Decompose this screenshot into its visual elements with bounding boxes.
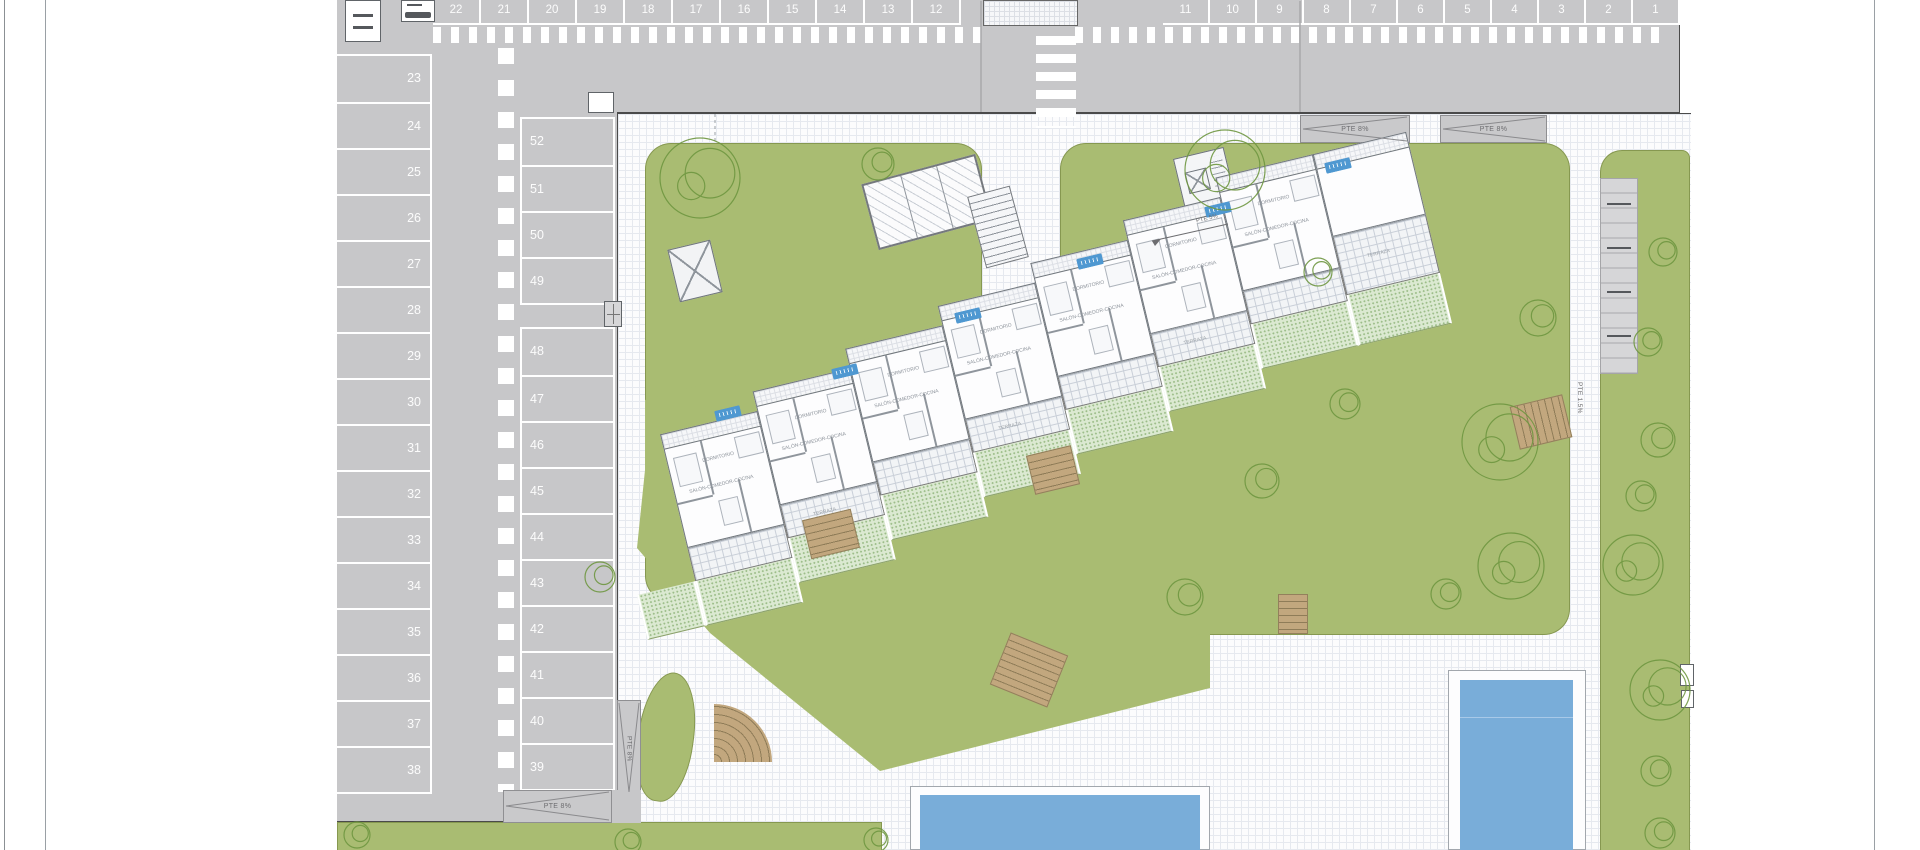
parking-stall: 22: [433, 0, 481, 23]
bed-icon: [951, 324, 981, 359]
parking-stall: 40: [522, 697, 613, 743]
parking-stall: 14: [817, 0, 865, 23]
parking-stall: 11: [1163, 0, 1210, 23]
swimming-pool-center: [920, 795, 1200, 850]
parking-stall: 16: [721, 0, 769, 23]
parking-stall: 8: [1304, 0, 1351, 23]
parking-stall: 44: [522, 513, 613, 559]
table-icon: [1274, 239, 1300, 269]
parking-stall: 15: [769, 0, 817, 23]
parking-stall: 33: [337, 516, 430, 562]
parking-row-top-left: 2221201918171615141312: [433, 0, 961, 25]
bathroom-icon: [1011, 303, 1041, 330]
road-marking-dashes: [1075, 27, 1660, 43]
parking-stall: 30: [337, 378, 430, 424]
parking-stall: 17: [673, 0, 721, 23]
drawing-border-right: [1874, 0, 1875, 850]
parking-stall: 25: [337, 148, 430, 194]
parking-stall: 35: [337, 608, 430, 654]
terrace-label: TERRAZA: [998, 421, 1022, 432]
car-symbol-box: [401, 0, 435, 22]
entrance-booth: [588, 92, 614, 113]
parking-stall: 26: [337, 194, 430, 240]
bathroom-icon: [826, 388, 856, 415]
parking-stall: 5: [1445, 0, 1492, 23]
bed-icon: [1136, 238, 1166, 273]
parking-stall: 51: [522, 165, 613, 211]
ramp-north-2: PTE 8%: [1440, 115, 1547, 143]
lawn-bottom-strip: [337, 822, 882, 850]
crossing-landing: [983, 0, 1078, 26]
terrace-label: TERRAZA: [1367, 248, 1391, 259]
drawing-border-left: [45, 0, 46, 850]
terrace-label: TERRAZA: [1183, 335, 1207, 346]
bed-icon: [673, 452, 703, 487]
bed-icon: [1043, 281, 1073, 316]
table-icon: [996, 368, 1022, 398]
path-slope-label: PTE 1.5%: [1576, 382, 1583, 414]
sign-box-icon: [345, 0, 381, 42]
lawn-steps: [1278, 594, 1308, 634]
page-edge-line: [4, 0, 5, 850]
private-garden: [637, 581, 706, 640]
parking-stall: 32: [337, 470, 430, 516]
parking-stall: 29: [337, 332, 430, 378]
bathroom-icon: [1104, 260, 1134, 287]
dash-mark: [407, 4, 422, 6]
bathroom-icon: [734, 431, 764, 458]
table-icon: [811, 453, 837, 483]
parking-stall: 52: [522, 119, 613, 165]
room-label: DORMITORIO: [702, 451, 735, 464]
parking-stall: 45: [522, 467, 613, 513]
parking-column-left: 23242526272829303132333435363738: [337, 54, 432, 794]
bathroom-icon: [919, 346, 949, 373]
table-icon: [1181, 282, 1207, 312]
parking-stall: 43: [522, 559, 613, 605]
bed-icon: [1228, 196, 1258, 231]
parking-stall: 19: [577, 0, 625, 23]
elevator-icon: [1184, 168, 1211, 195]
room-label: DORMITORIO: [1165, 237, 1198, 250]
parking-stall: 42: [522, 605, 613, 651]
apartment-module: TERRAZA: [1313, 132, 1423, 222]
parking-stall: 10: [1210, 0, 1257, 23]
room-label: DORMITORIO: [887, 365, 920, 378]
parking-stall: 23: [337, 56, 430, 102]
parking-stall: 13: [865, 0, 913, 23]
utility-box: [1680, 664, 1694, 686]
parking-stall: 4: [1492, 0, 1539, 23]
bed-icon: [765, 410, 795, 445]
parking-stall: 38: [337, 746, 430, 792]
room-label: DORMITORIO: [1072, 280, 1105, 293]
parking-stall: 50: [522, 211, 613, 257]
parking-stall: 6: [1398, 0, 1445, 23]
parking-stall: 12: [913, 0, 961, 23]
parking-stall: 20: [529, 0, 577, 23]
parking-stall: 3: [1539, 0, 1586, 23]
table-icon: [718, 496, 744, 526]
road-marking-dashes: [433, 27, 985, 43]
parking-stall: 41: [522, 651, 613, 697]
parking-stall: 37: [337, 700, 430, 746]
parking-stall: 27: [337, 240, 430, 286]
table-icon: [903, 410, 929, 440]
parking-stall: 2: [1586, 0, 1633, 23]
car-icon: [405, 12, 431, 18]
ramp-west-vertical: PTE 8%: [617, 700, 641, 797]
ramp-label: PTE 8%: [544, 803, 571, 810]
parking-stall: 24: [337, 102, 430, 148]
ramp-corner: [612, 790, 641, 823]
room-label: DORMITORIO: [794, 408, 827, 421]
lane-divider-dashes: [498, 48, 514, 792]
parking-row-top-right: 1110987654321: [1163, 0, 1680, 25]
parking-stall: 21: [481, 0, 529, 23]
room-label: DORMITORIO: [979, 322, 1012, 335]
parking-stall: 36: [337, 654, 430, 700]
parking-stall: 9: [1257, 0, 1304, 23]
utility-box: [1681, 690, 1694, 708]
swimming-pool-right: [1460, 680, 1573, 850]
site-plan-canvas: 2221201918171615141312 1110987654321 232…: [0, 0, 1920, 850]
parking-stall: 1: [1633, 0, 1680, 23]
ramp-label: PTE 8%: [1480, 126, 1507, 133]
bike-racks: [1600, 178, 1638, 374]
table-icon: [1088, 325, 1114, 355]
ramp-label: PTE 8%: [626, 736, 633, 762]
parking-stall: 34: [337, 562, 430, 608]
room-label: DORMITORIO: [1257, 194, 1290, 207]
zebra-crossing: [1036, 36, 1076, 128]
parking-stall: 28: [337, 286, 430, 332]
parking-stall: 31: [337, 424, 430, 470]
bathroom-icon: [1289, 174, 1319, 201]
parking-stall: 39: [522, 743, 613, 789]
ramp-south-horizontal: PTE 8%: [503, 790, 612, 823]
parking-stall: 18: [625, 0, 673, 23]
bed-icon: [858, 367, 888, 402]
parking-stall: 7: [1351, 0, 1398, 23]
